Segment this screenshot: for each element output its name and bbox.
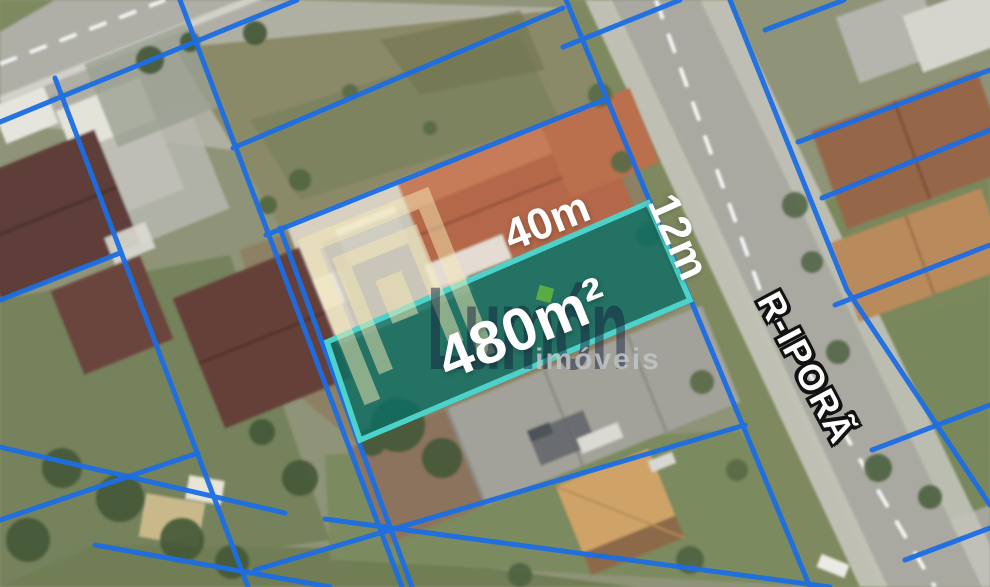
satellite-basemap [0,0,990,587]
aerial-lot-listing-image: Lumón imóveis 40m 12m 480m² R-IPORÃ [0,0,990,587]
